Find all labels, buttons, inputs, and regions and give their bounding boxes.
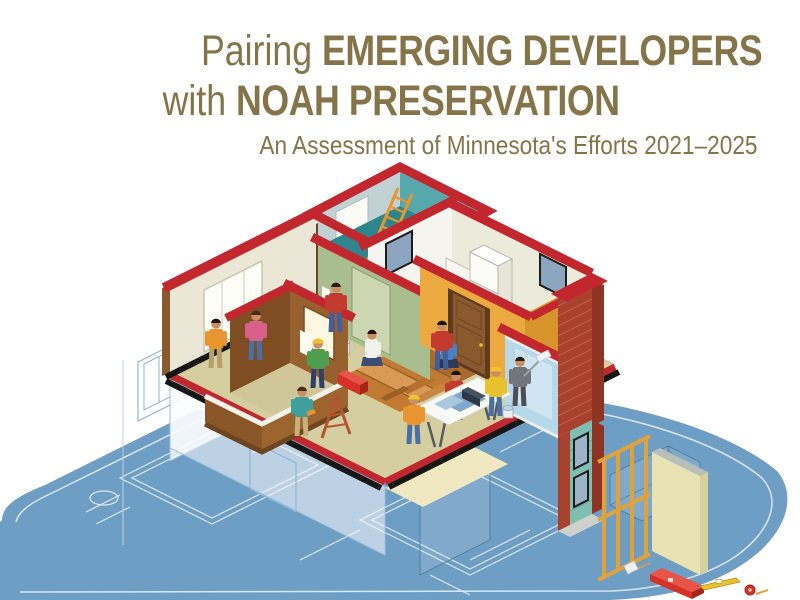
cover-illustration bbox=[0, 0, 800, 600]
tape-measure bbox=[745, 585, 768, 595]
painter-bucket bbox=[503, 406, 513, 419]
report-cover: Pairing EMERGING DEVELOPERS with NOAH PR… bbox=[0, 0, 800, 600]
brick-column bbox=[551, 273, 608, 537]
siding-windows bbox=[570, 420, 592, 525]
